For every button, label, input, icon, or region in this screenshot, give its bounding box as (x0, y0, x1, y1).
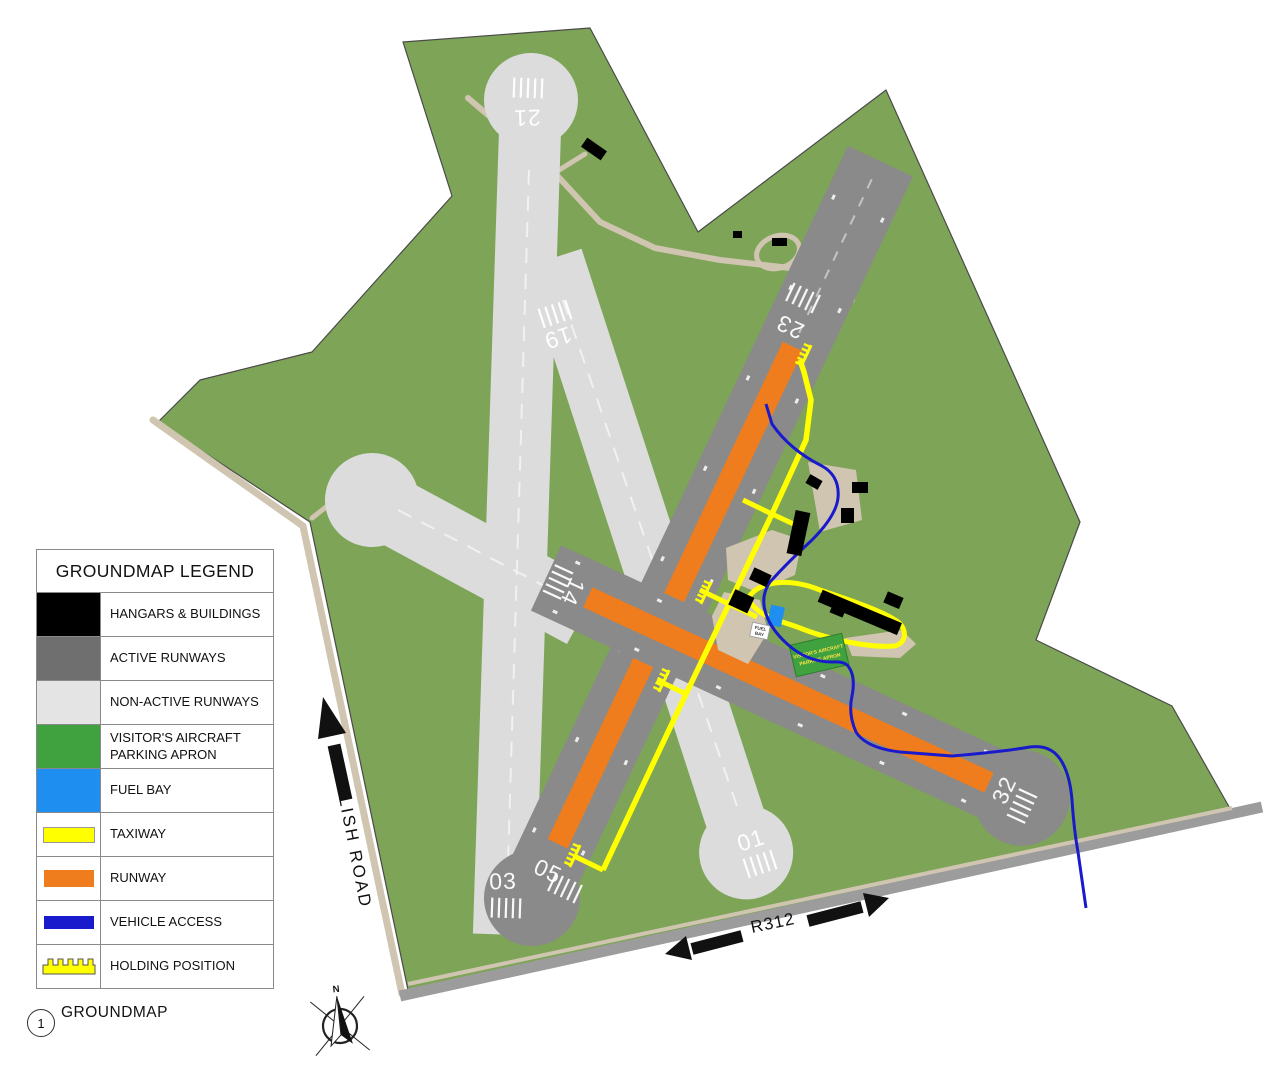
legend-label: ACTIVE RUNWAYS (101, 637, 273, 680)
groundmap-legend: GROUNDMAP LEGEND HANGARS & BUILDINGS ACT… (36, 549, 274, 989)
groundmap-figure: VISITOR'S AIRCRAFT PARKING APRON FUEL BA… (0, 0, 1280, 1069)
legend-row-active-runways: ACTIVE RUNWAYS (37, 637, 273, 681)
figure-title: GROUNDMAP (61, 1004, 168, 1022)
taxiway-swatch (43, 827, 95, 843)
figure-number-badge: 1 (27, 1009, 55, 1037)
holding-position-swatch (41, 956, 97, 977)
hangars-swatch (37, 593, 100, 636)
legend-row-visitor-apron: VISITOR'S AIRCRAFT PARKING APRON (37, 725, 273, 769)
hangar-building (772, 238, 787, 246)
legend-label: HOLDING POSITION (101, 945, 273, 988)
legend-label: RUNWAY (101, 857, 273, 900)
legend-row-fuel-bay: FUEL BAY (37, 769, 273, 813)
legend-label: FUEL BAY (101, 769, 273, 812)
legend-title: GROUNDMAP LEGEND (37, 550, 273, 593)
legend-label: HANGARS & BUILDINGS (101, 593, 273, 636)
hangar-building (841, 508, 854, 523)
legend-label: VISITOR'S AIRCRAFT PARKING APRON (101, 725, 273, 768)
active-runways-swatch (37, 637, 100, 680)
nonactive-runways-swatch (37, 681, 100, 724)
legend-label: TAXIWAY (101, 813, 273, 856)
visitor-apron-swatch (37, 725, 100, 768)
r312-arrow-left-shaft (692, 936, 742, 949)
hangar-building (852, 482, 868, 493)
legend-row-vehicle-access: VEHICLE ACCESS (37, 901, 273, 945)
runway-label-21: 21 (513, 105, 541, 132)
runway-label-03: 03 (489, 868, 517, 895)
legend-label: VEHICLE ACCESS (101, 901, 273, 944)
compass-rose: N (309, 981, 370, 1055)
fuel-bay-swatch (37, 769, 100, 812)
hangar-building (733, 231, 742, 238)
r312-arrow-right-head (863, 893, 889, 917)
legend-row-hangars: HANGARS & BUILDINGS (37, 593, 273, 637)
legend-row-holding-position: HOLDING POSITION (37, 945, 273, 988)
legend-label: NON-ACTIVE RUNWAYS (101, 681, 273, 724)
vehicle-access-swatch (44, 916, 94, 929)
legend-row-taxiway: TAXIWAY (37, 813, 273, 857)
compass-north-label: N (332, 984, 340, 996)
legend-row-runway: RUNWAY (37, 857, 273, 901)
figure-number: 1 (37, 1016, 44, 1031)
runway-swatch (44, 870, 94, 887)
legend-row-nonactive-runways: NON-ACTIVE RUNWAYS (37, 681, 273, 725)
